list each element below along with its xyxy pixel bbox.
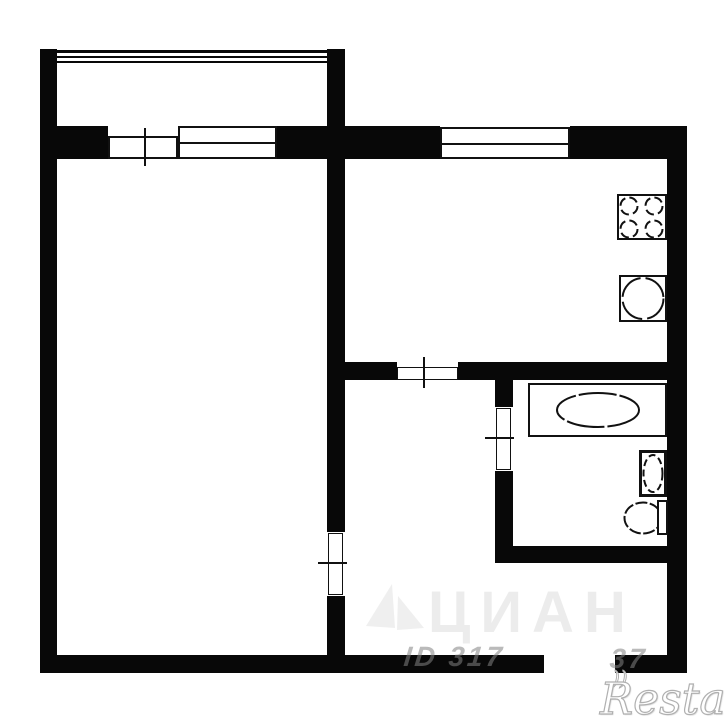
- kitchen-door-frame: [397, 367, 458, 380]
- wall-middle-upper: [327, 49, 345, 532]
- living-room-door-tick: [318, 562, 347, 564]
- living-room-window-sill: [108, 136, 178, 159]
- wall-top-mid-segment: [277, 126, 440, 159]
- kitchen-sink-icon: [619, 275, 667, 322]
- toilet-tank: [657, 500, 668, 535]
- window-mullion: [179, 142, 276, 144]
- living-room-door-frame: [328, 533, 343, 595]
- bathtub-icon: [528, 383, 667, 437]
- stove-icon: [617, 194, 667, 240]
- bathroom-door-tick: [485, 437, 514, 439]
- wall-top-right-segment: [570, 126, 687, 159]
- stove-burner: [646, 198, 663, 215]
- floor-plan: ЦИАН ID 317 37 )) Restate: [0, 0, 725, 725]
- balcony-glazing-line: [57, 61, 330, 63]
- window-mullion: [441, 143, 569, 145]
- balcony-glazing-line: [57, 56, 330, 58]
- washbasin-icon: [639, 450, 667, 497]
- stove-burner: [646, 221, 663, 238]
- wall-outer-right: [667, 126, 687, 673]
- stove-burner: [621, 198, 638, 215]
- wall-top-left-segment: [40, 126, 108, 159]
- bathroom-door-frame: [496, 408, 511, 470]
- stove-burner: [621, 221, 638, 238]
- window-divider-tick: [144, 128, 146, 166]
- balcony-glazing-line: [57, 50, 330, 53]
- kitchen-window: [440, 127, 570, 159]
- wall-bathroom-upper: [495, 362, 513, 407]
- wall-kitchen-hall-right: [458, 362, 667, 380]
- cian-watermark-logo-icon: [362, 582, 428, 645]
- living-room-window: [178, 126, 277, 159]
- wall-kitchen-hall-left: [345, 362, 397, 380]
- listing-id-watermark: ID 317: [402, 641, 506, 673]
- restate-watermark-logo: Restate: [600, 678, 725, 722]
- wall-bathroom-bottom: [495, 546, 667, 563]
- wall-middle-lower: [327, 596, 345, 655]
- cian-watermark-text: ЦИАН: [428, 584, 636, 642]
- kitchen-door-tick: [423, 357, 425, 388]
